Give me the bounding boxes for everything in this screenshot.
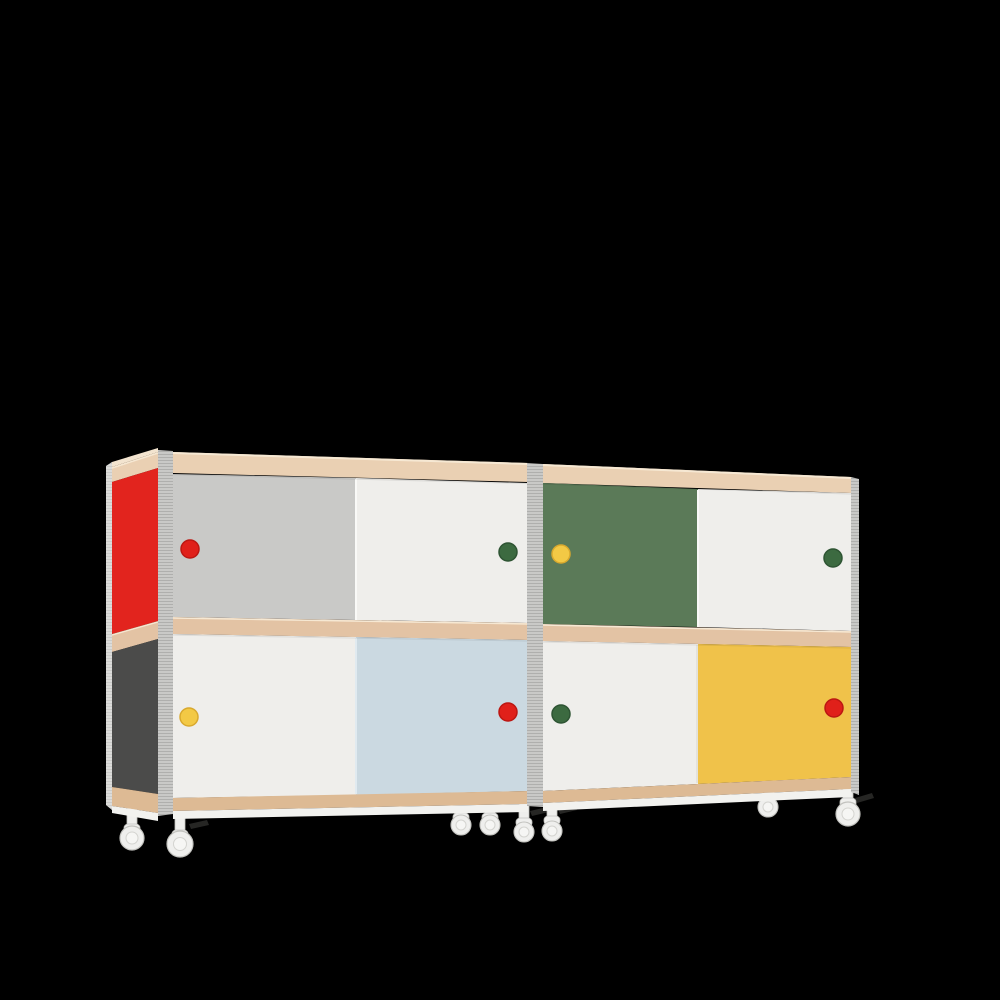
back-edge-strip-sheen [106, 462, 112, 810]
handle-left-unit-top-left-red [181, 540, 199, 558]
scene-background [0, 0, 1000, 1000]
handle-right-unit-bottom-left-green [552, 705, 570, 723]
right-unit-front [543, 464, 851, 811]
side-panel-red [112, 468, 158, 634]
caster-hub [174, 838, 187, 851]
left-unit-front [173, 452, 528, 819]
handle-left-unit-bottom-right-red [499, 703, 517, 721]
left-side-panel [106, 448, 158, 821]
sideboard-render [0, 0, 1000, 1000]
handle-right-unit-bottom-right-red [825, 699, 843, 717]
caster-hub [842, 808, 854, 820]
caster-hub [519, 827, 529, 837]
left-unit-door-top-left-gray [173, 474, 356, 620]
front-left-edge-strip [158, 450, 173, 816]
handle-left-unit-top-right-green [499, 543, 517, 561]
brake-lever [189, 820, 209, 829]
right-edge-strip [851, 477, 859, 795]
handle-right-unit-top-left-yellow [552, 545, 570, 563]
caster-hub [485, 820, 495, 830]
caster-hub [547, 826, 557, 836]
handle-right-unit-top-right-green [824, 549, 842, 567]
center-edge-strip [527, 463, 543, 807]
caster-hub [763, 802, 773, 812]
side-panel-dark-gray [112, 639, 158, 794]
caster-hub [456, 820, 466, 830]
caster-hub [126, 832, 138, 844]
left-unit-door-bottom-left-white [173, 634, 356, 798]
handle-left-unit-bottom-left-yellow [180, 708, 198, 726]
